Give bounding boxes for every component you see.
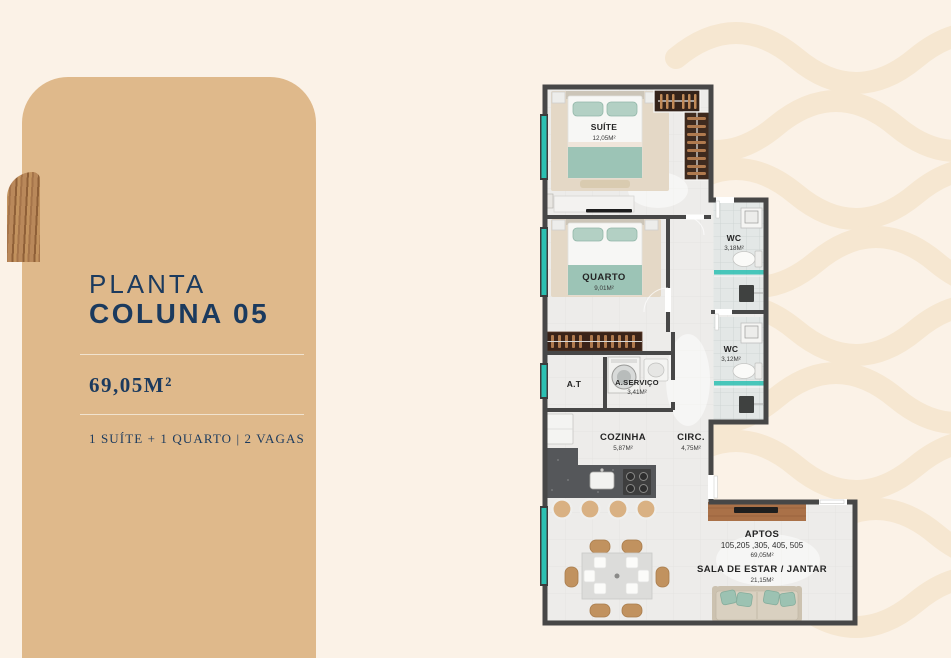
room-area-circ: 4,75M² bbox=[681, 445, 701, 452]
tv-console bbox=[708, 502, 806, 521]
dresser-tv bbox=[544, 194, 634, 213]
aptos-label: APTOS bbox=[745, 529, 780, 540]
brochure-page: PLANTA COLUNA 05 69,05M² 1 SUÍTE + 1 QUA… bbox=[0, 0, 951, 658]
room-label-wc1: WC bbox=[727, 233, 742, 243]
room-area-wc2: 3,12M² bbox=[721, 356, 741, 363]
room-label-sala: SALA DE ESTAR / JANTAR bbox=[697, 564, 827, 575]
plan-title-line2: COLUNA 05 bbox=[89, 300, 269, 328]
room-area-suite: 12,05M² bbox=[592, 135, 615, 142]
info-card: PLANTA COLUNA 05 69,05M² 1 SUÍTE + 1 QUA… bbox=[22, 77, 316, 658]
room-area-wc1: 3,18M² bbox=[724, 245, 744, 252]
plan-title-line1: PLANTA bbox=[89, 271, 206, 297]
room-area-cozinha: 5,87M² bbox=[613, 445, 633, 452]
aptos-area: 69,05M² bbox=[750, 552, 773, 559]
room-area-quarto: 9,01M² bbox=[594, 285, 614, 292]
room-label-quarto: QUARTO bbox=[582, 272, 625, 283]
quarto-bed bbox=[552, 218, 658, 295]
room-area-servico: 3,41M² bbox=[627, 389, 647, 396]
total-area-label: 69,05M² bbox=[89, 373, 173, 398]
quarto-wardrobe bbox=[546, 332, 642, 351]
wood-arch-decoration bbox=[7, 172, 40, 262]
room-label-circ: CIRC. bbox=[677, 432, 705, 443]
unit-features-label: 1 SUÍTE + 1 QUARTO | 2 VAGAS bbox=[89, 431, 305, 447]
room-area-sala: 21,15M² bbox=[750, 577, 773, 584]
room-label-suite: SUÍTE bbox=[591, 122, 618, 132]
divider-top bbox=[80, 354, 304, 355]
floorplan-image: SUÍTE 12,05M² QUARTO 9,01M² WC 3,18M² WC… bbox=[538, 80, 860, 628]
sofa bbox=[712, 586, 802, 622]
divider-bottom bbox=[80, 414, 304, 415]
room-label-servico: A.SERVIÇO bbox=[615, 378, 659, 387]
room-label-at: A.T bbox=[567, 379, 582, 389]
aptos-units: 105,205 ,305, 405, 505 bbox=[721, 541, 804, 550]
room-label-wc2: WC bbox=[724, 344, 739, 354]
room-label-cozinha: COZINHA bbox=[600, 432, 646, 443]
